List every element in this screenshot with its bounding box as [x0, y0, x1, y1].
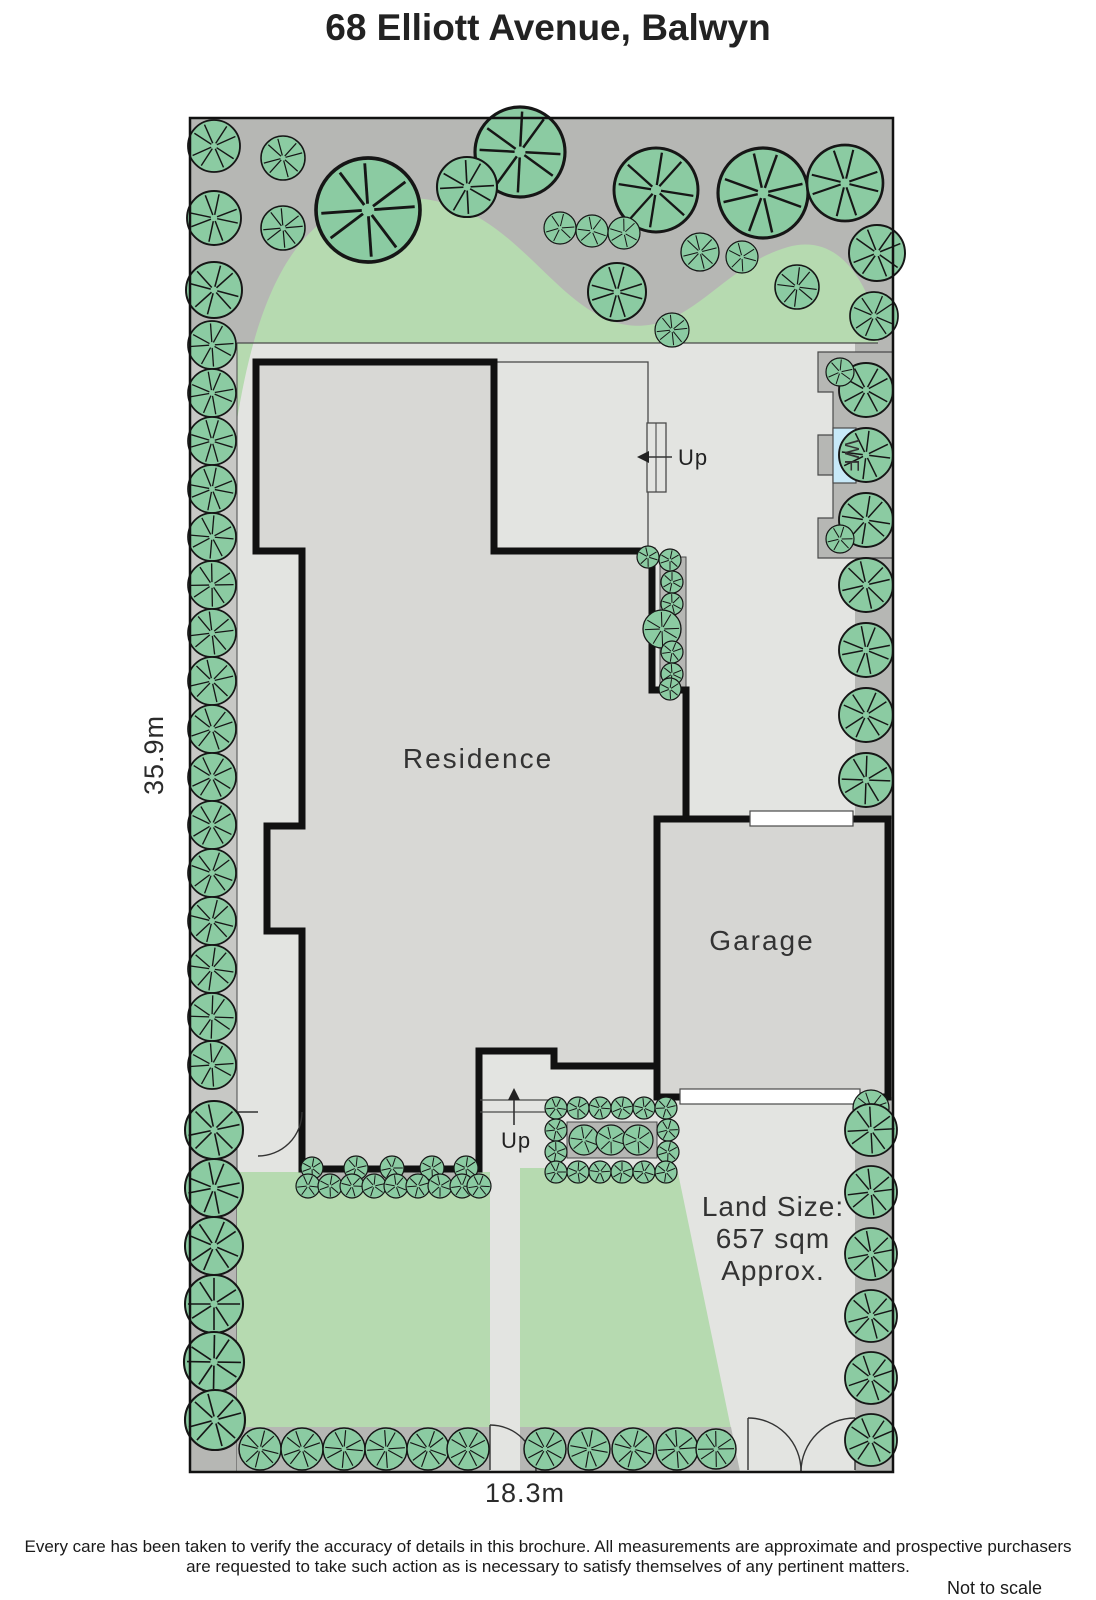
tree-icon	[655, 313, 689, 347]
tree-icon	[188, 801, 236, 849]
tree-icon	[845, 1290, 897, 1342]
tree-icon	[185, 1390, 245, 1450]
tree-icon	[623, 1125, 653, 1155]
tree-icon	[188, 561, 236, 609]
tree-icon	[696, 1429, 736, 1469]
tree-icon	[633, 1097, 655, 1119]
not-to-scale-label: Not to scale	[947, 1578, 1042, 1598]
garage-rear-door-opening	[750, 811, 853, 826]
tree-icon	[323, 1428, 365, 1470]
tree-icon	[849, 225, 905, 281]
tree-icon	[188, 465, 236, 513]
tree-icon	[596, 1125, 626, 1155]
depth-dimension-label: 35.9m	[139, 715, 169, 795]
tree-icon	[188, 513, 236, 561]
tree-icon	[545, 1141, 567, 1163]
tree-icon	[567, 1097, 589, 1119]
land-size-line2: 657 sqm	[716, 1223, 830, 1254]
land-size-line3: Approx.	[721, 1255, 825, 1286]
tree-icon	[261, 206, 305, 250]
front-lawn-west	[237, 1172, 490, 1427]
rear-terrace	[494, 362, 648, 551]
tree-icon	[718, 148, 808, 238]
width-dimension-label: 18.3m	[485, 1478, 565, 1508]
tree-icon	[655, 1161, 677, 1183]
tree-icon	[608, 217, 640, 249]
land-size-line1: Land Size:	[702, 1191, 844, 1222]
tree-icon	[261, 136, 305, 180]
tree-icon	[568, 1428, 610, 1470]
tree-icon	[188, 849, 236, 897]
tree-icon	[845, 1228, 897, 1280]
tree-icon	[576, 215, 608, 247]
tree-icon	[239, 1428, 281, 1470]
tree-icon	[437, 157, 497, 217]
tree-icon	[661, 641, 683, 663]
tree-icon	[188, 705, 236, 753]
tree-icon	[826, 525, 854, 553]
tree-icon	[655, 1097, 677, 1119]
tree-icon	[185, 1101, 243, 1159]
tree-icon	[365, 1428, 407, 1470]
tree-icon	[384, 1174, 408, 1198]
page-title: 68 Elliott Avenue, Balwyn	[325, 7, 770, 48]
tree-icon	[611, 1161, 633, 1183]
tree-icon	[612, 1428, 654, 1470]
tree-icon	[567, 1161, 589, 1183]
tree-icon	[467, 1174, 491, 1198]
tree-icon	[447, 1428, 489, 1470]
tree-icon	[845, 1166, 897, 1218]
tree-icon	[839, 558, 893, 612]
tree-icon	[657, 1141, 679, 1163]
tree-icon	[524, 1428, 566, 1470]
tree-icon	[184, 1332, 244, 1392]
disclaimer-line2: are requested to take such action as is …	[186, 1557, 910, 1576]
tree-icon	[188, 945, 236, 993]
garage-footprint	[657, 819, 888, 1097]
tree-icon	[186, 262, 242, 318]
tree-icon	[656, 1428, 698, 1470]
tree-icon	[406, 1174, 430, 1198]
tree-icon	[545, 1161, 567, 1183]
tree-icon	[661, 571, 683, 593]
tree-icon	[185, 1159, 243, 1217]
tree-icon	[633, 1161, 655, 1183]
tree-icon	[839, 753, 893, 807]
tree-icon	[589, 1097, 611, 1119]
garage-front-door-opening	[680, 1089, 860, 1104]
tree-icon	[545, 1097, 567, 1119]
tree-icon	[318, 1174, 342, 1198]
tree-icon	[545, 1119, 567, 1141]
tree-icon	[407, 1428, 449, 1470]
tree-icon	[826, 358, 854, 386]
tree-icon	[188, 120, 240, 172]
tree-icon	[589, 1161, 611, 1183]
tree-icon	[659, 549, 681, 571]
residence-label: Residence	[403, 743, 553, 774]
tree-icon	[188, 417, 236, 465]
disclaimer-line1: Every care has been taken to verify the …	[25, 1537, 1072, 1556]
tree-icon	[187, 191, 241, 245]
tree-icon	[657, 1119, 679, 1141]
tree-icon	[362, 1174, 386, 1198]
tree-icon	[296, 1174, 320, 1198]
hedge-box-inner-trees	[569, 1125, 653, 1155]
tree-icon	[188, 1041, 236, 1089]
tree-icon	[188, 609, 236, 657]
rear-up-label: Up	[678, 445, 708, 470]
garage-label: Garage	[709, 925, 814, 956]
tree-icon	[281, 1428, 323, 1470]
tree-icon	[681, 233, 719, 271]
tree-icon	[611, 1097, 633, 1119]
front-hedge-trees-east	[524, 1428, 736, 1470]
tree-icon	[850, 292, 898, 340]
tree-icon	[185, 1275, 243, 1333]
tree-icon	[775, 265, 819, 309]
tree-icon	[659, 678, 681, 700]
water-feature-label: WF	[840, 439, 862, 472]
tree-icon	[839, 688, 893, 742]
site-plan-page: 68 Elliott Avenue, Balwyn	[0, 0, 1096, 1600]
front-up-label: Up	[501, 1128, 531, 1153]
tree-icon	[188, 993, 236, 1041]
tree-icon	[185, 1217, 243, 1275]
tree-icon	[188, 321, 236, 369]
tree-icon	[845, 1352, 897, 1404]
tree-icon	[839, 623, 893, 677]
site-plan-canvas: 68 Elliott Avenue, Balwyn	[0, 0, 1096, 1600]
tree-icon	[845, 1104, 897, 1156]
tree-icon	[188, 369, 236, 417]
tree-icon	[428, 1174, 452, 1198]
tree-icon	[807, 145, 883, 221]
tree-icon	[188, 897, 236, 945]
tree-icon	[316, 158, 420, 262]
tree-icon	[726, 241, 758, 273]
tree-icon	[340, 1174, 364, 1198]
tree-icon	[544, 212, 576, 244]
tree-icon	[845, 1414, 897, 1466]
tree-icon	[569, 1125, 599, 1155]
tree-icon	[588, 263, 646, 321]
tree-icon	[188, 657, 236, 705]
tree-icon	[637, 546, 659, 568]
tree-icon	[188, 753, 236, 801]
